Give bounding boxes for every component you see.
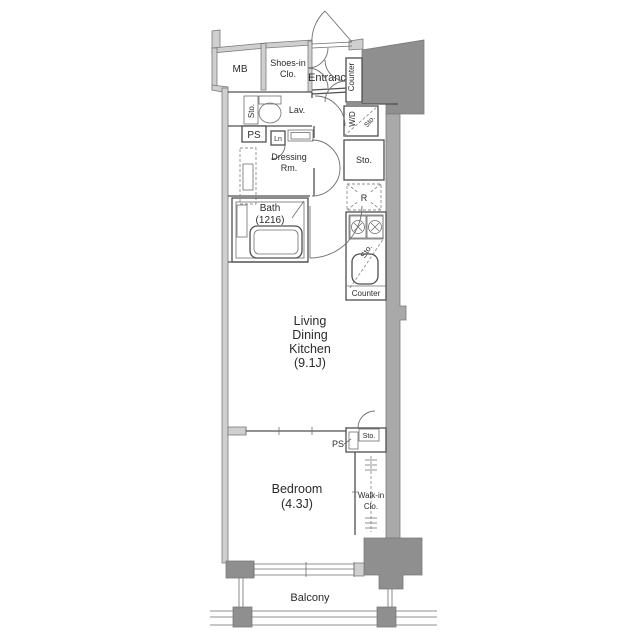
dressing-vanity-basin [243, 164, 253, 190]
lavatory-door-arc [315, 96, 345, 126]
bathtub [250, 226, 302, 258]
pipe-space-upper: PS [242, 126, 266, 142]
walk-in-closet: Walk-in Clo. [358, 456, 384, 532]
dressing-door-arc-bottom [312, 168, 340, 196]
balcony-post-left [233, 607, 252, 627]
wall-shoes-right [308, 41, 312, 92]
refrigerator-label: R [361, 193, 368, 203]
bedroom-storage-door-arc [358, 411, 375, 428]
bedroom: Bedroom (4.3J) [272, 452, 358, 535]
column-bottom-left [226, 561, 254, 578]
bathroom: Bath (1216) [232, 198, 308, 262]
wic-label-1: Walk-in [358, 491, 384, 500]
ldk-label-2: Dining [292, 328, 327, 342]
shoes-closet-label-1: Shoes-in [270, 58, 306, 68]
wall-left [222, 88, 228, 563]
bath-leader-line [292, 201, 304, 218]
entrance-sill-line [312, 42, 352, 48]
bedroom-window [254, 562, 354, 577]
balcony-label: Balcony [290, 592, 330, 604]
shoes-closet-label-2: Clo. [280, 69, 296, 79]
wall-partition-stub [228, 427, 246, 435]
entrance-door-arc [312, 11, 325, 44]
refrigerator-space: R [347, 184, 381, 210]
dressing-label-2: Rm. [281, 163, 298, 173]
lavatory-room: Sto. Lav. [228, 92, 345, 126]
bedroom-storage-label: Sto. [363, 433, 376, 440]
kitchen-counter-label: Counter [352, 289, 381, 298]
ldk-label-3: Kitchen [289, 342, 331, 356]
entrance-door-leaf [325, 11, 352, 42]
hall-storage: Sto. [344, 140, 384, 180]
ldk-label-4: (9.1J) [294, 356, 326, 370]
ldk-label-1: Living [294, 314, 327, 328]
bath-label-1: Bath [260, 203, 281, 214]
washer-dryer-unit: W/D Sto. [344, 106, 378, 136]
wall-mb-right [261, 43, 266, 90]
hall-storage-label: Sto. [356, 155, 372, 165]
floor-plan: Entrance MB Shoes-in Clo. Counter W/D St… [0, 0, 640, 640]
wic-label-2: Clo. [364, 502, 378, 511]
column-bottom-right [364, 538, 422, 589]
balcony-divider-right [388, 589, 392, 609]
wall-right-strip [386, 114, 406, 538]
window-lines [254, 564, 354, 575]
washbasin-counter [288, 130, 313, 141]
bedroom-label-2: (4.3J) [281, 497, 313, 511]
pipe-space-upper-label: PS [247, 130, 261, 141]
living-dining-kitchen: Living Dining Kitchen (9.1J) [289, 314, 331, 370]
entry-counter-label: Counter [347, 62, 356, 91]
washer-dryer-label: W/D [348, 111, 357, 127]
wall-top-shoes [266, 40, 312, 48]
kitchen: R Sto. Counter [346, 184, 386, 300]
wall-mb-left [212, 48, 217, 90]
lavatory-storage-label: Sto. [247, 104, 256, 118]
dressing-door-arc-top [312, 140, 340, 168]
bathtub-inner [254, 230, 298, 254]
balcony-divider-left [239, 578, 243, 609]
column-top-right [362, 40, 424, 114]
wall-bottom-right-of-window [354, 563, 364, 576]
lavatory-label: Lav. [289, 105, 305, 115]
pipe-space-lower-box [349, 432, 358, 449]
linen-label: Ln [274, 136, 282, 143]
toilet-bowl [259, 103, 281, 123]
sliding-partition [246, 427, 346, 435]
bath-label-2: (1216) [256, 215, 285, 226]
bedroom-label-1: Bedroom [272, 482, 323, 496]
pipe-space-lower-label: PS [332, 439, 344, 449]
dressing-label-1: Dressing [271, 152, 307, 162]
floor-plan-drawing: Entrance MB Shoes-in Clo. Counter W/D St… [0, 0, 640, 640]
bath-counter [237, 205, 247, 237]
balcony-post-right [377, 607, 396, 627]
mb-label: MB [233, 64, 248, 75]
